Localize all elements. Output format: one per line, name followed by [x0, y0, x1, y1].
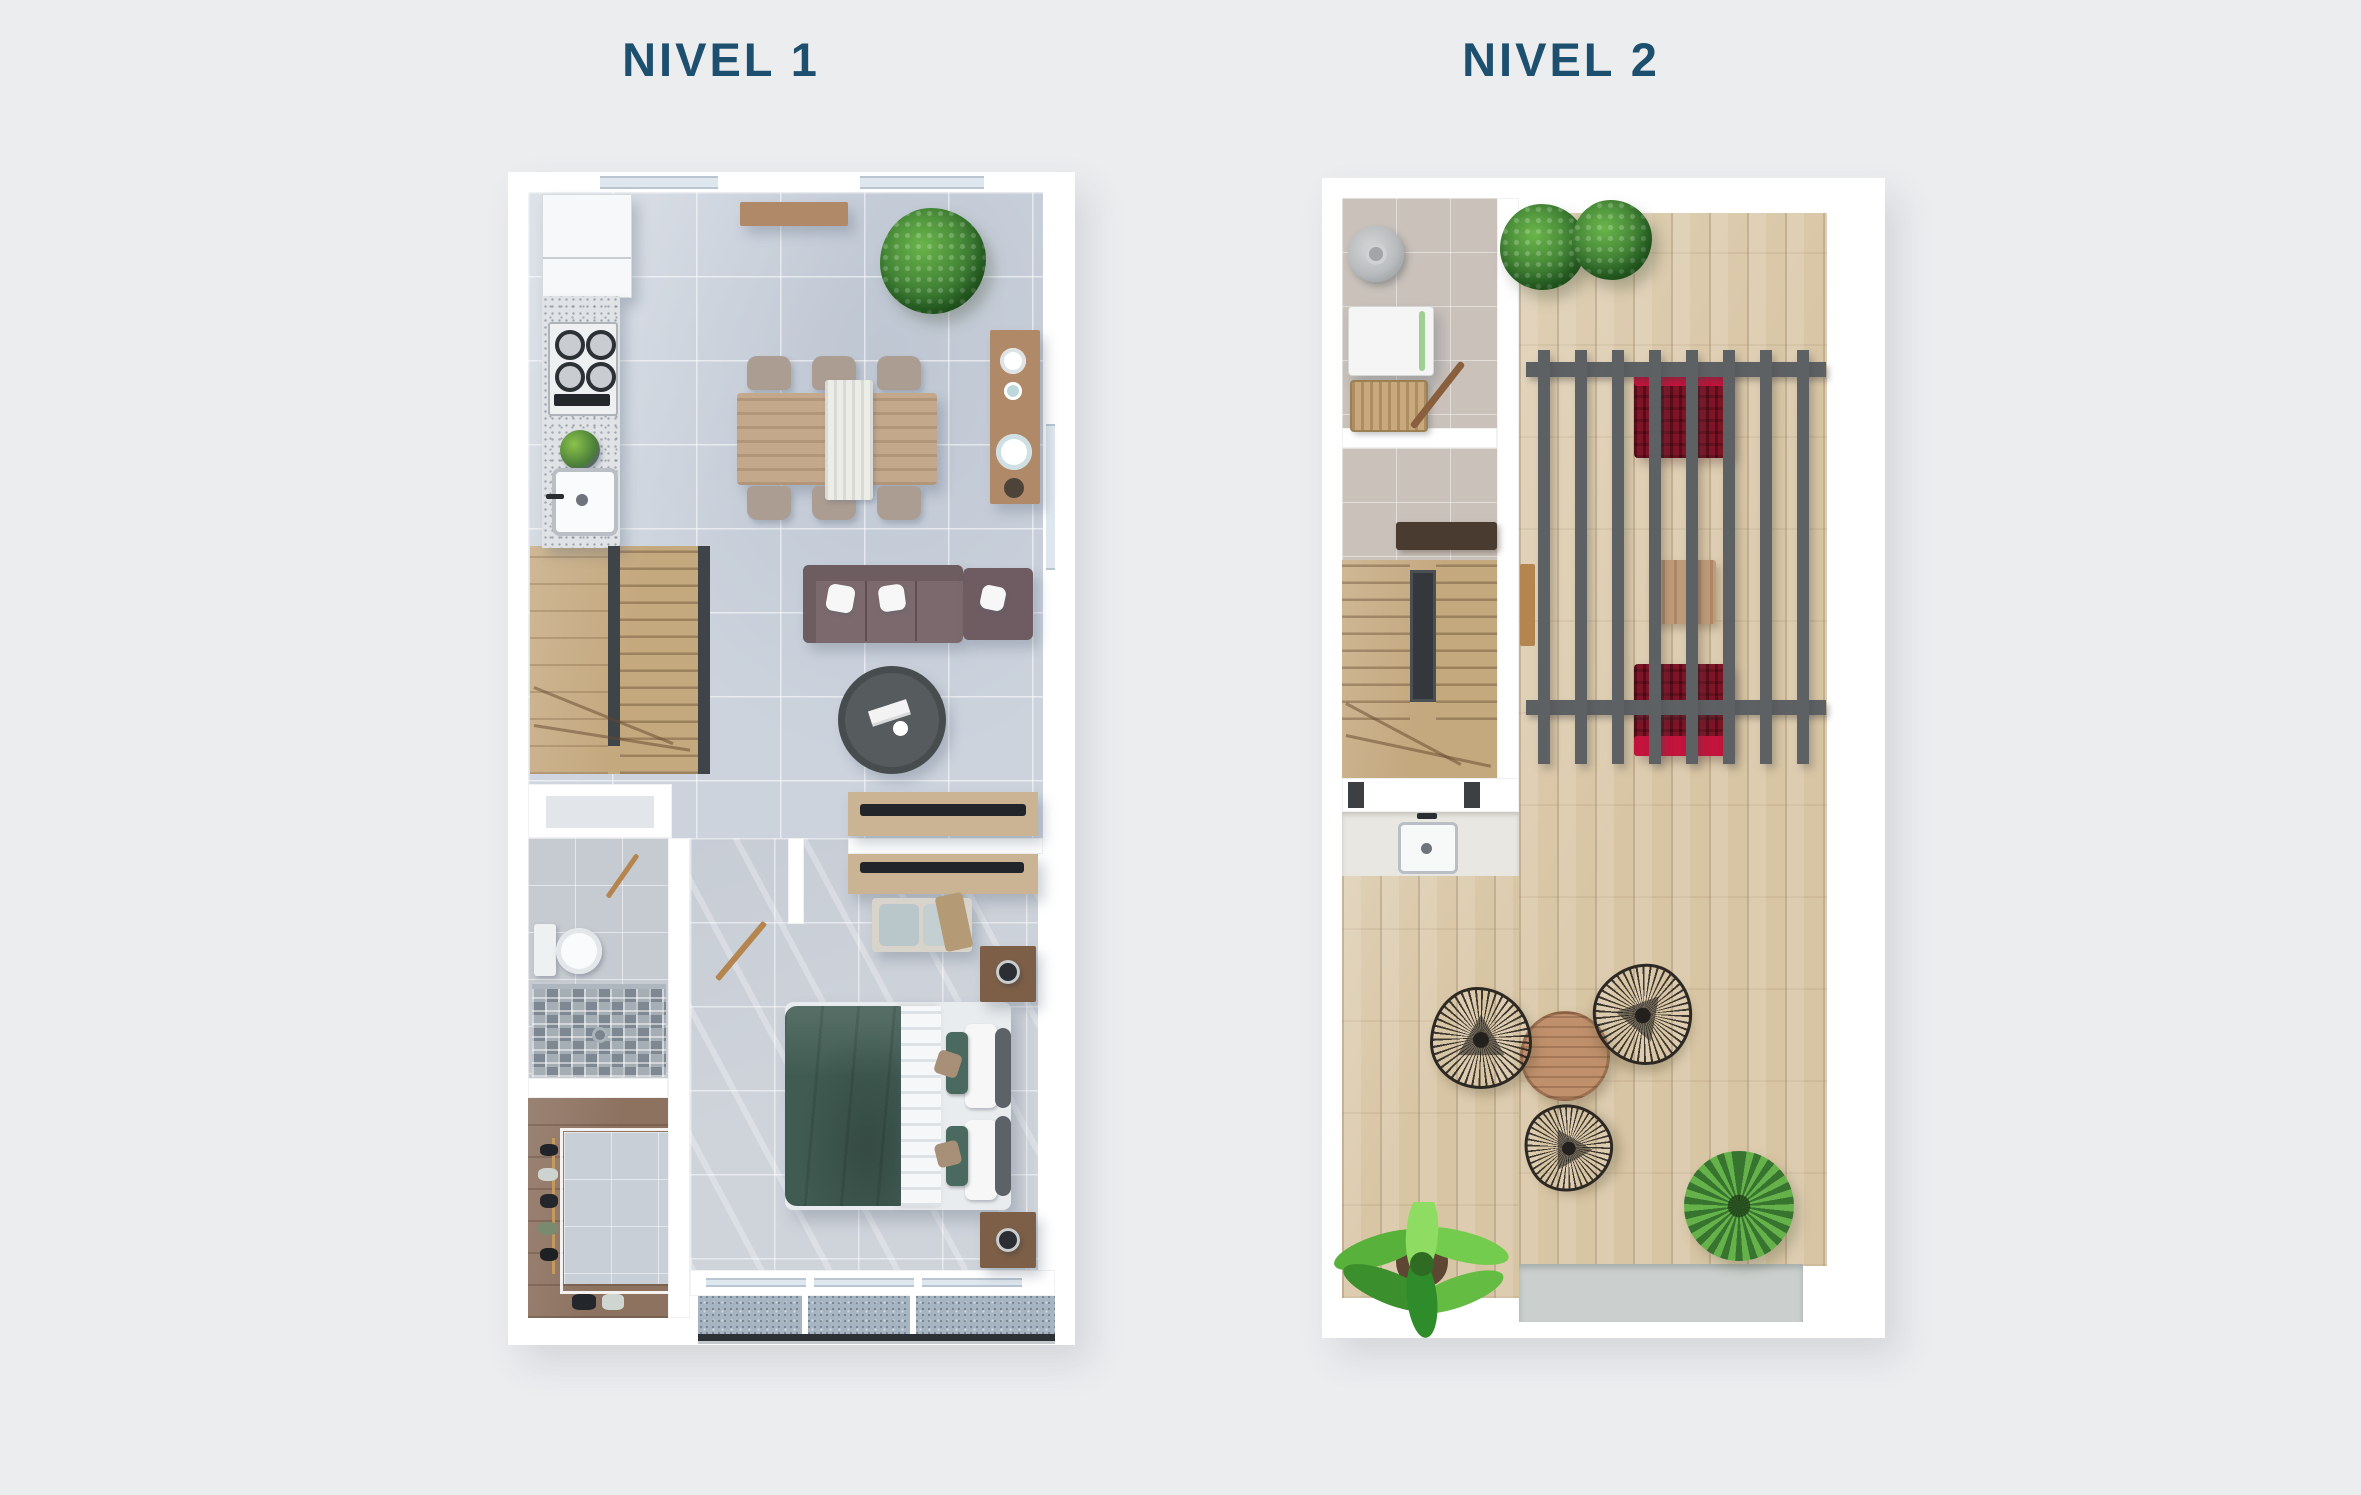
bed-pillow-white: [965, 1024, 997, 1108]
sink-drain: [576, 494, 588, 506]
stair2-flight-left: [1342, 560, 1410, 720]
banana-plant: [1330, 1202, 1510, 1342]
terrace-shrub: [1684, 1151, 1794, 1261]
sofa-backrest: [803, 565, 963, 581]
window-right-wall: [1046, 424, 1055, 570]
dining-chair: [747, 486, 791, 520]
bedroom-bench: [872, 898, 972, 952]
terrace-step-pad: [1519, 1264, 1803, 1322]
outdoor-sink-faucet: [1417, 813, 1437, 819]
sofa-seam: [915, 581, 917, 641]
balcony-mullion: [802, 1294, 808, 1334]
stove-burner: [555, 362, 585, 392]
kitchen-sink: [552, 468, 618, 536]
nightstand: [980, 1212, 1036, 1268]
shower: [532, 989, 666, 1077]
stove: [548, 322, 618, 416]
understair-niche: [546, 796, 654, 828]
bedroom-door-jamb: [788, 838, 804, 924]
stair2-top-rail: [1396, 522, 1497, 550]
tv-living: [860, 804, 1026, 816]
terrace-door-leaf: [1520, 564, 1535, 646]
folded-clothes: [602, 1294, 624, 1310]
tv-bedroom: [860, 862, 1024, 873]
sink-faucet: [546, 494, 564, 499]
dining-chair: [877, 356, 921, 390]
toilet-bowl: [556, 928, 602, 974]
doorway-post: [1464, 782, 1480, 808]
cup: [893, 721, 908, 736]
sofa-pillow: [825, 583, 856, 614]
sofa-seam: [865, 581, 867, 641]
stove-controls: [554, 394, 610, 406]
hanging-clothes: [538, 1168, 558, 1181]
bed-bolster: [995, 1116, 1011, 1196]
doorway-post: [1348, 782, 1364, 808]
stove-burner: [555, 330, 585, 360]
bed-bolster: [995, 1028, 1011, 1108]
sofa-pillow: [979, 584, 1007, 612]
balcony-wall: [690, 1270, 1055, 1296]
fridge-door-split: [543, 257, 631, 259]
washer-panel: [1419, 311, 1425, 371]
window-top-left: [600, 176, 718, 189]
level2-title: NIVEL 2: [1281, 36, 1841, 83]
magazine: [868, 699, 910, 724]
bowl: [1004, 478, 1024, 498]
closet-inner-floor: [564, 1132, 668, 1284]
floorplan-level-2: [1322, 178, 1885, 1338]
sofa-armrest: [803, 565, 816, 643]
balcony-rail: [698, 1341, 1055, 1344]
fridge: [542, 194, 632, 298]
bath-closet-wall: [528, 1078, 668, 1098]
water-heater: [1348, 226, 1404, 282]
sofa-pillow: [877, 583, 906, 612]
living-bedroom-wall: [848, 838, 1043, 854]
nightstand: [980, 946, 1036, 1002]
outdoor-sink-drain: [1421, 843, 1432, 854]
pergola-slats: [1538, 350, 1824, 764]
balcony-window: [814, 1278, 914, 1287]
stair-railing: [698, 546, 710, 774]
shower-drain: [592, 1027, 608, 1043]
toilet-tank: [534, 924, 556, 976]
bed-pillow-white: [965, 1120, 997, 1200]
stairwell-opening: [1410, 570, 1436, 702]
outdoor-sink: [1398, 822, 1458, 874]
washing-machine: [1348, 306, 1434, 376]
level1-title: NIVEL 1: [441, 36, 1001, 83]
table-runner: [825, 380, 873, 500]
heater-cap: [1365, 243, 1387, 265]
stair2-flight-right: [1436, 560, 1497, 720]
teacup: [1004, 382, 1022, 400]
tv-console-bedroom: [848, 854, 1038, 894]
sofa: [803, 565, 963, 643]
balcony-rail-track: [698, 1334, 1055, 1341]
tv-console-living: [848, 792, 1038, 836]
serving-plate: [996, 434, 1032, 470]
nightstand-lamp: [996, 1228, 1020, 1252]
stove-burner: [586, 362, 616, 392]
hanging-clothes: [540, 1144, 558, 1156]
entry-console: [740, 202, 848, 226]
balcony-window: [922, 1278, 1022, 1287]
bed-duvet: [785, 1006, 903, 1206]
hanging-clothes: [538, 1222, 558, 1235]
nightstand-lamp: [996, 960, 1020, 984]
floorplan-level-1: [508, 172, 1075, 1345]
bed: [785, 1002, 1011, 1210]
coffee-table: [838, 666, 946, 774]
window-top-right: [860, 176, 984, 189]
floorplan-canvas: NIVEL 1 NIVEL 2: [0, 0, 2361, 1495]
balcony-mullion: [910, 1294, 916, 1334]
balcony-floor: [698, 1294, 1055, 1334]
balcony-window: [706, 1278, 806, 1287]
dining-chair: [877, 486, 921, 520]
hanging-clothes: [540, 1194, 558, 1208]
ficus-plant: [880, 208, 986, 314]
kitchen-plant-pot: [560, 430, 600, 470]
terrace-bush: [1572, 200, 1652, 280]
stair-landing: [530, 546, 608, 774]
plate: [1000, 348, 1026, 374]
stair-doorway-wall: [1342, 778, 1519, 812]
folded-clothes: [572, 1294, 596, 1310]
bed-sheet-fold: [901, 1006, 941, 1206]
chaise-module: [963, 568, 1033, 640]
hanging-clothes: [540, 1248, 558, 1261]
bench-cushion: [879, 904, 919, 946]
dining-chair: [747, 356, 791, 390]
stove-burner: [586, 330, 616, 360]
sideboard: [990, 330, 1040, 504]
terrace-divider-wall: [1497, 198, 1519, 812]
